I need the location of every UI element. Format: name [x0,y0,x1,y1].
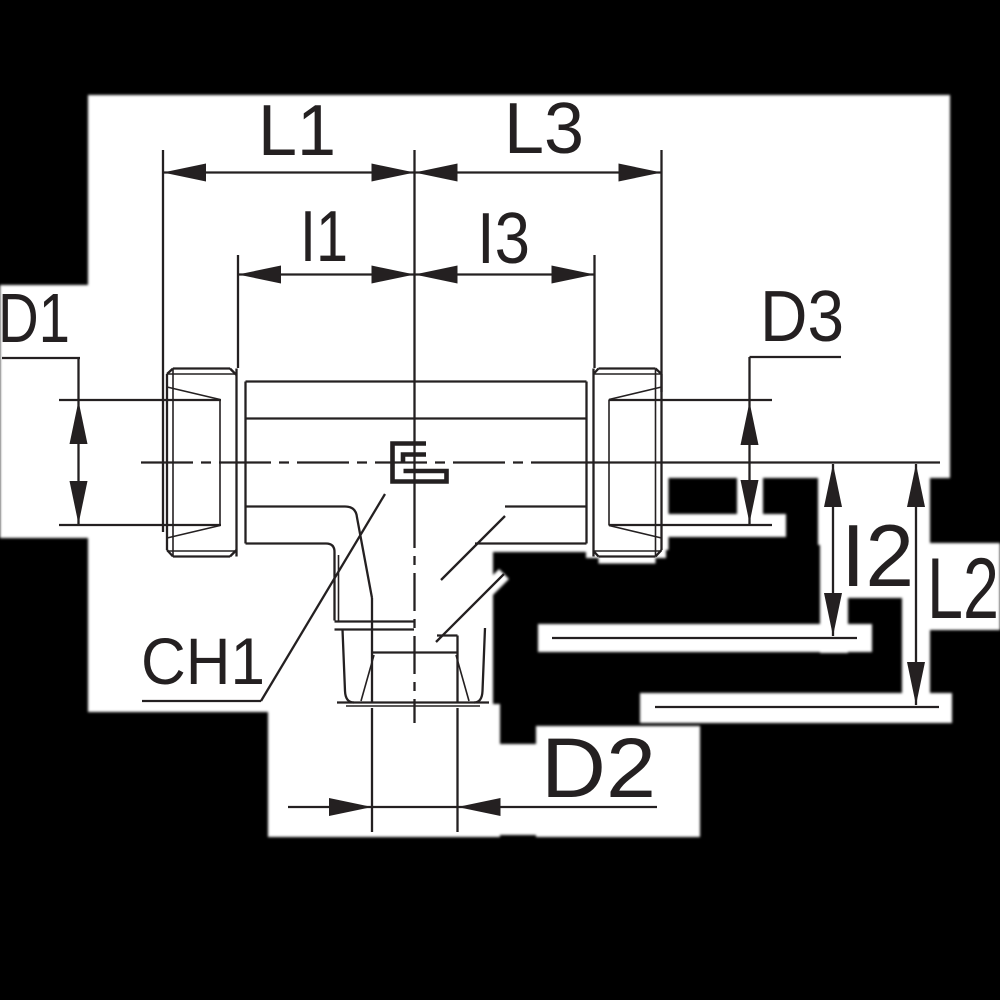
svg-text:D3: D3 [760,277,844,357]
svg-text:D1: D1 [0,279,70,357]
svg-text:I2: I2 [841,506,914,605]
svg-text:I1: I1 [300,197,348,277]
svg-text:L3: L3 [504,89,584,169]
svg-text:D2: D2 [541,721,656,815]
svg-text:L1: L1 [258,91,336,171]
svg-text:L2: L2 [927,541,999,637]
svg-text:CH1: CH1 [141,624,265,698]
svg-text:I3: I3 [477,199,530,279]
